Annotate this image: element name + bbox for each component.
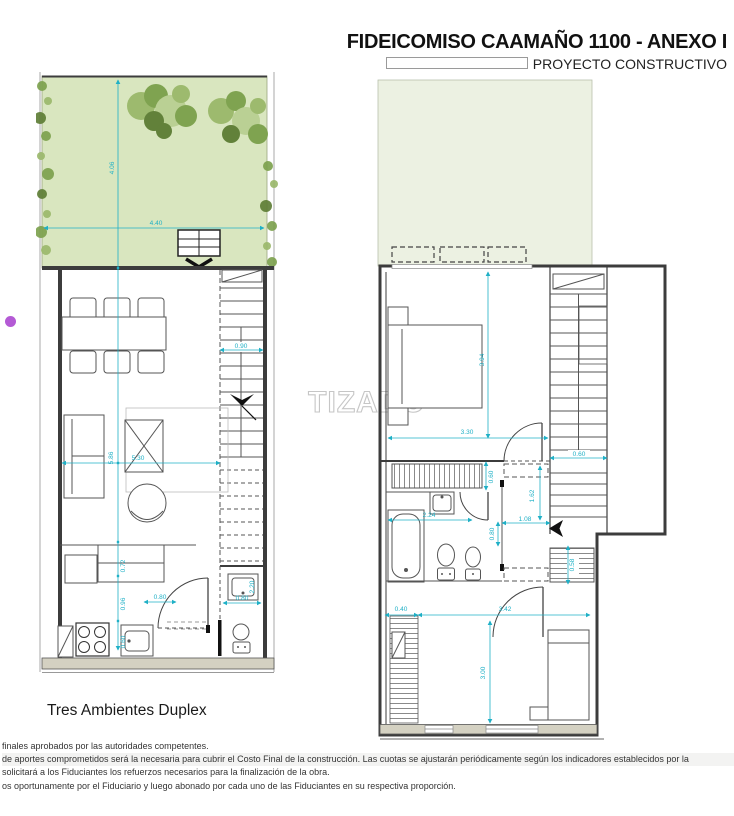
dim-label: 3.30 [461,429,474,436]
footnote-line: solicitará a los Fiduciantes los refuerz… [2,766,734,779]
dim-label: 0.58 [569,558,576,571]
dim-label: 0.60 [573,451,586,458]
staircase: 0.90 [220,270,263,566]
stove-icon [76,623,109,656]
dim-label: 5.30 [132,455,145,462]
chair-icon [104,351,130,373]
nightstand [388,408,408,425]
dim-label: 3.00 [480,666,487,679]
bedroom-1: 3.94 3.30 [380,272,550,461]
floor-plan-sheet: FIDEICOMISO CAAMAÑO 1100 - ANEXO I PROYE… [0,0,734,816]
dim-label: 0.80 [489,527,496,540]
entry-door [158,578,210,633]
toilet-icon [438,544,455,580]
door [460,492,488,520]
footnote-line: de aportes comprometidos será la necesar… [2,753,734,766]
opening [504,568,548,581]
bathroom: 2.24 [386,492,502,582]
sofa-icon [64,415,104,498]
stair-landing: 0.58 [550,546,594,584]
dim-label: 3.94 [479,353,486,366]
footnote-line: finales aprobados por las autoridades co… [2,740,734,753]
dim-label: 2.20 [249,580,256,593]
bottom-wall [42,658,274,669]
cabinet [65,555,97,583]
footnote-line: os oportunamente por el Fiduciario y lue… [2,780,734,793]
dim-label: 0.60 [488,470,495,483]
chair-icon [70,351,96,373]
dim-label: 4.06 [109,161,116,174]
dining-table-icon [62,317,166,350]
bidet-icon [466,547,481,580]
dim-label: 0.72 [120,559,127,572]
dim-label: 1.62 [529,489,536,502]
dim-label: 0.80 [236,595,249,602]
nightstand [388,307,408,325]
document-subtitle: PROYECTO CONSTRUCTIVO [533,56,727,72]
toilet-icon [233,624,250,653]
footnotes: finales aprobados por las autoridades co… [2,740,734,793]
opening [504,464,548,477]
kitchen [58,545,196,657]
dim-label: 0.96 [120,597,127,610]
washbasin-icon [430,492,454,514]
document-title: FIDEICOMISO CAAMAÑO 1100 - ANEXO I [0,31,727,54]
nightstand [530,707,548,720]
dim-label: 4.40 [150,220,163,227]
dim-label: 1.08 [519,516,532,523]
dim-label: 0.90 [235,343,248,350]
bathtub-icon [388,510,424,582]
garden [36,76,278,268]
staircase: 0.60 [549,267,607,537]
chair-icon [138,351,164,373]
dim-label: 2.24 [423,512,436,519]
closet: 0.60 [392,462,495,490]
upper-floor-plan: 0.60 3.94 3.30 0.60 [372,76,672,748]
bedroom-2: 0.40 3.42 3.00 [385,606,590,723]
terrace-void [378,80,592,266]
stair-direction-arrow-icon [549,520,563,537]
title-box [386,57,528,69]
plan-caption: Tres Ambientes Duplex [47,702,207,720]
door [504,423,542,461]
armchair-icon [128,484,166,522]
stair-direction-arrow-icon [230,394,256,420]
dim-label: 0.40 [395,606,408,613]
dim-label: 0.60 [120,635,127,648]
bathroom: 0.80 2.20 [218,566,267,656]
dim-label: 0.80 [154,594,167,601]
dim-label: 5.86 [108,451,115,464]
coffee-table-icon [125,420,163,472]
window-icon [392,265,532,269]
dining-set [62,298,166,373]
ground-floor-plan: 0.90 [36,66,286,706]
dim-label: 3.42 [499,606,512,613]
annotation-dot [5,316,16,327]
